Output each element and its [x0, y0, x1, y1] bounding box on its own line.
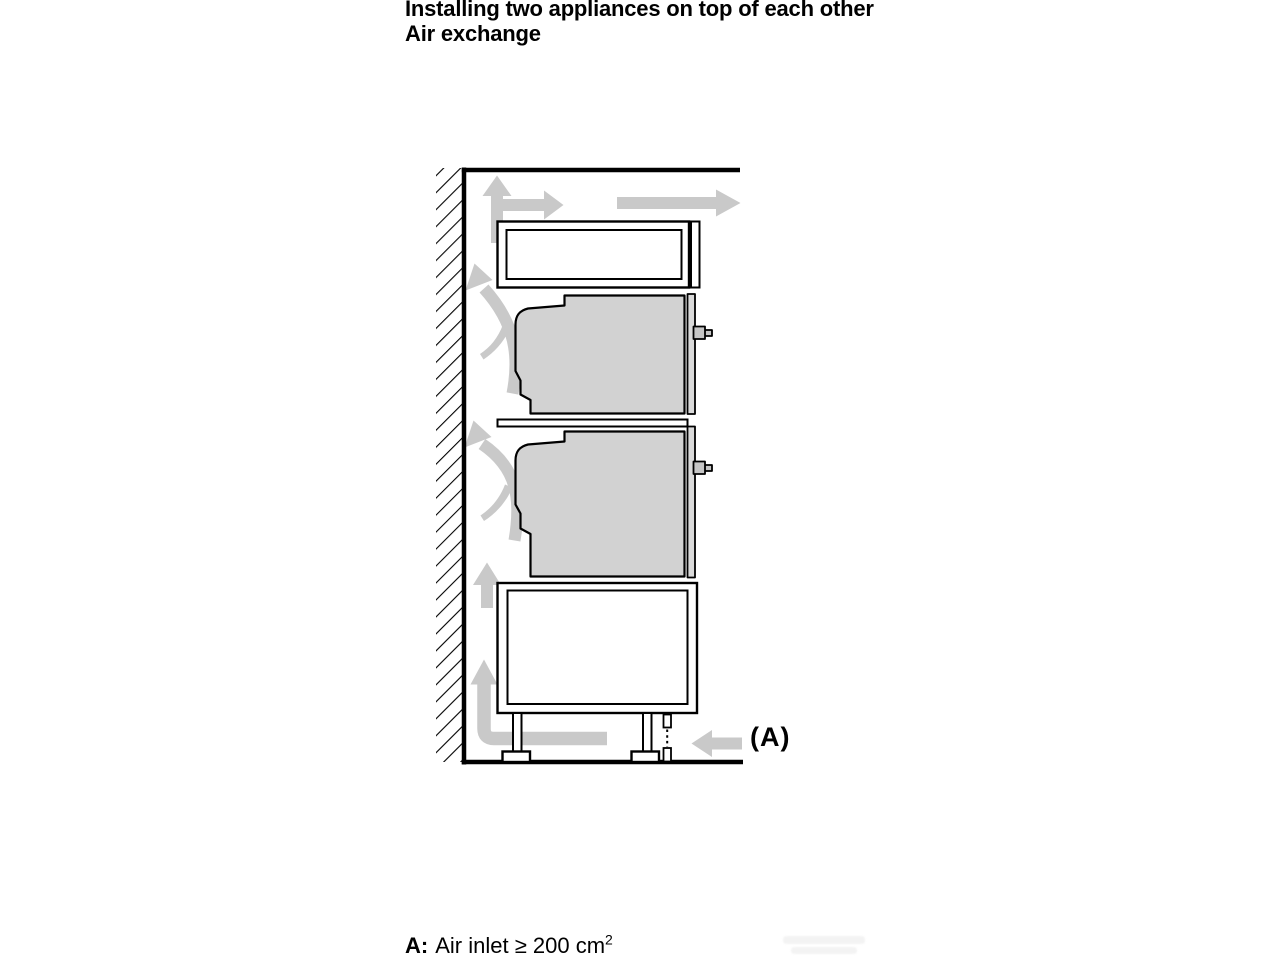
installation-diagram	[0, 0, 1280, 960]
air-inlet-vent	[664, 715, 672, 762]
appliance-2	[516, 427, 713, 578]
cabinet-leg-left	[513, 713, 522, 752]
watermark-blur-line	[783, 936, 865, 944]
wall-hatching	[436, 168, 462, 762]
watermark	[783, 936, 871, 956]
caption-key: A:	[405, 933, 428, 958]
cabinet-leg-right	[643, 713, 652, 752]
appliance-1-door	[688, 294, 696, 414]
cabinet-foot-right	[632, 752, 660, 763]
appliance-1-body	[516, 296, 685, 414]
caption: A:Air inlet ≥ 200 cm2	[405, 933, 613, 959]
page-title: Installing two appliances on top of each…	[405, 0, 893, 21]
appliance-2-body	[516, 432, 685, 577]
watermark-blur-line	[791, 947, 857, 954]
shelf-between-appliances	[498, 420, 688, 427]
air-inlet-label: (A)	[750, 722, 790, 753]
cabinet-foot-left	[503, 752, 531, 763]
appliance-1-handle	[694, 327, 713, 340]
upper-cabinet-inner	[507, 230, 682, 279]
appliance-2-handle	[694, 462, 713, 475]
appliance-1	[516, 294, 713, 414]
cabinet-front-edge-top	[691, 222, 700, 288]
appliance-2-door	[688, 427, 696, 578]
page-subtitle: Air exchange	[405, 21, 893, 46]
airflow-swirl-appliance-1-inner	[480, 325, 511, 360]
airflow-arrow-bottom-l-head	[471, 660, 498, 685]
caption-text: Air inlet ≥ 200 cm	[435, 933, 605, 958]
airflow-swirl-appliance-2	[465, 421, 518, 541]
base-cabinet-inner	[508, 591, 688, 705]
caption-superscript: 2	[605, 932, 613, 948]
airflow-swirl-appliance-2-inner	[481, 485, 513, 522]
airflow-arrow-inlet-left	[692, 730, 743, 757]
page: Installing two appliances on top of each…	[0, 0, 1280, 960]
airflow-arrow-right-long	[617, 190, 741, 217]
title-block: Installing two appliances on top of each…	[405, 0, 893, 46]
